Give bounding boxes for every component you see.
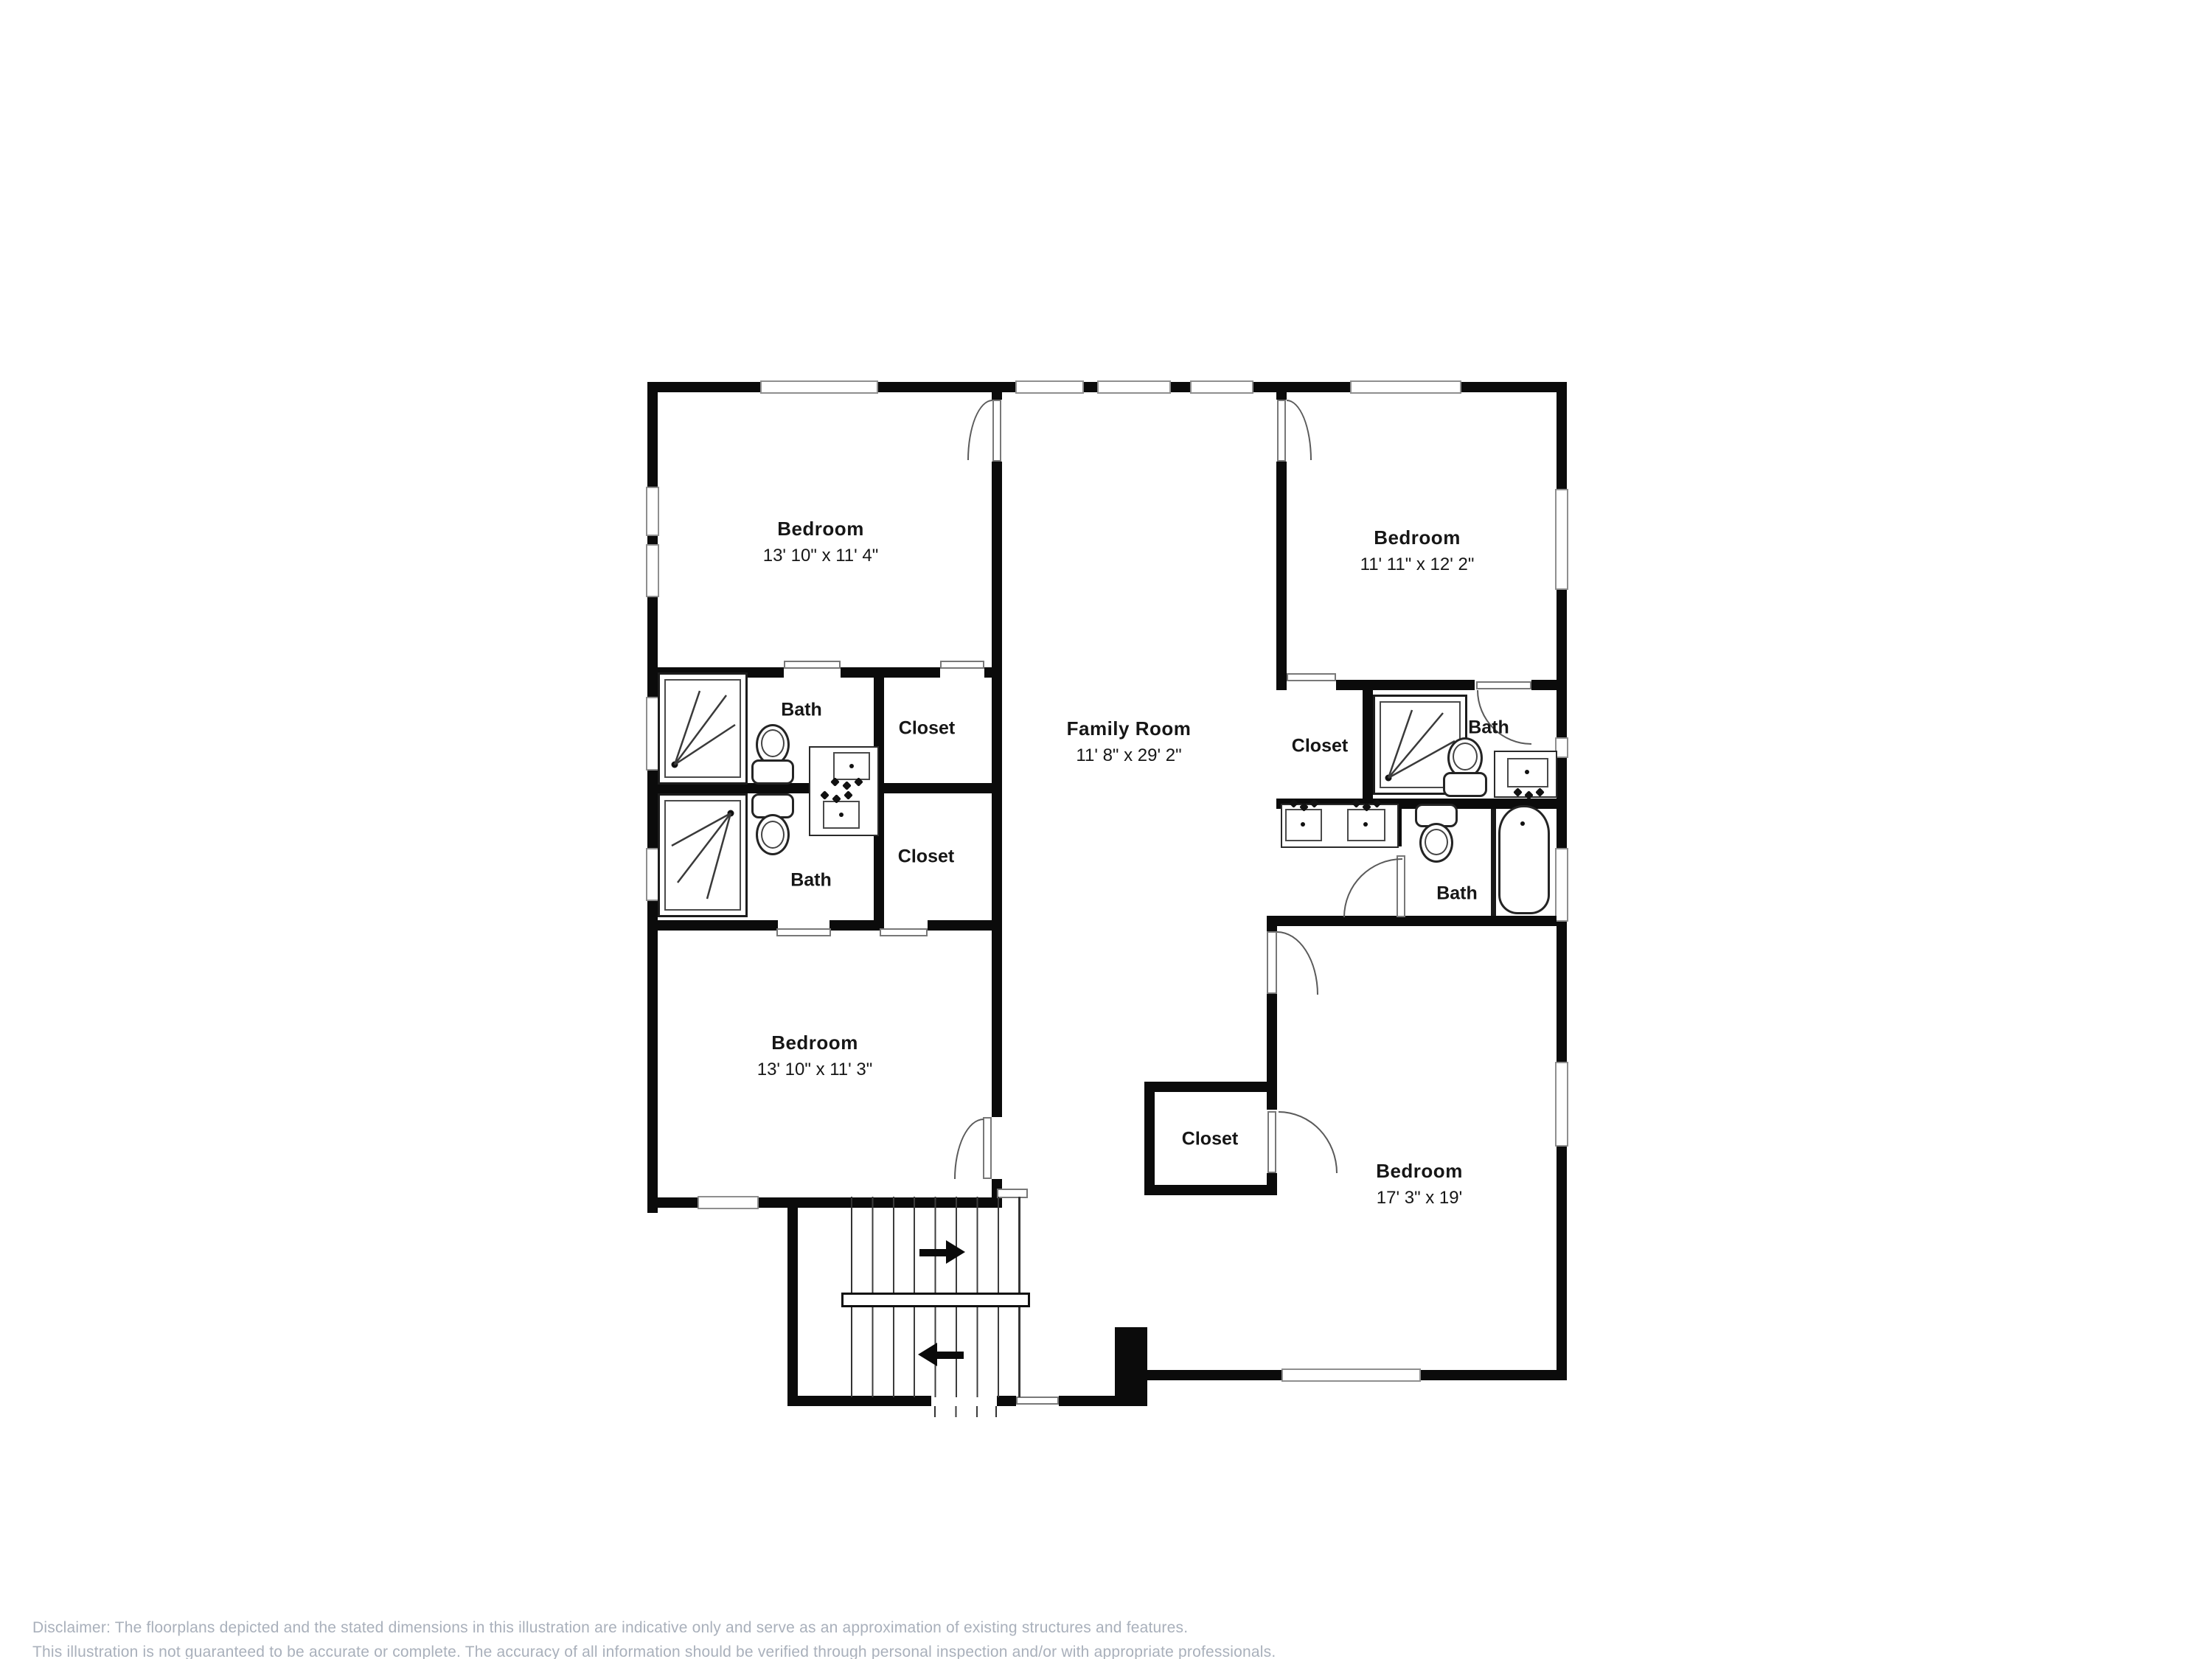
wall xyxy=(1253,382,1350,392)
wall xyxy=(1276,462,1287,690)
wall xyxy=(1147,1370,1281,1380)
door-arc xyxy=(954,1119,984,1179)
stairs-extension xyxy=(934,1406,997,1417)
door-arc xyxy=(967,400,992,460)
wall xyxy=(1461,382,1567,392)
wall xyxy=(997,1396,1016,1406)
room-dimensions: 13' 10" x 11' 4" xyxy=(763,546,879,566)
room-label-bath-right-upper: Bath xyxy=(1468,717,1509,739)
wall xyxy=(647,536,658,544)
room-label-bath-left-upper: Bath xyxy=(781,700,822,721)
wall xyxy=(647,901,658,1213)
disclaimer-line-2: This illustration is not guaranteed to b… xyxy=(32,1644,1276,1659)
window xyxy=(1350,380,1461,394)
room-label-bedroom-top-left: Bedroom 13' 10" x 11' 4" xyxy=(763,518,879,566)
window xyxy=(1281,1368,1421,1382)
room-label-bedroom-bottom-right: Bedroom 17' 3" x 19' xyxy=(1376,1160,1463,1208)
room-label-family-room: Family Room 11' 8" x 29' 2" xyxy=(1067,717,1192,766)
room-name: Bedroom xyxy=(763,518,879,540)
sink-drain xyxy=(1363,822,1368,827)
wall xyxy=(1267,994,1277,1084)
wall xyxy=(647,597,658,697)
wall xyxy=(787,1203,798,1406)
stairs-upper-flight xyxy=(851,1197,1020,1294)
wall xyxy=(1531,680,1557,690)
wall xyxy=(647,771,658,848)
room-name: Bedroom xyxy=(757,1032,873,1054)
wall xyxy=(1336,680,1475,690)
room-label-closet-left-upper: Closet xyxy=(899,718,955,740)
window xyxy=(760,380,878,394)
wall xyxy=(1557,922,1567,1062)
room-dimensions: 11' 11" x 12' 2" xyxy=(1360,554,1475,575)
toilet-bowl-inner xyxy=(1425,829,1448,855)
sink-drain xyxy=(849,764,854,768)
door-slab xyxy=(1476,681,1531,689)
wall xyxy=(1276,680,1287,690)
window xyxy=(1555,1062,1568,1147)
wall xyxy=(841,667,940,678)
room-name: Bedroom xyxy=(1360,526,1475,549)
wall xyxy=(1557,382,1567,489)
wall xyxy=(1171,382,1190,392)
wall xyxy=(1557,590,1567,737)
wall xyxy=(1276,382,1287,400)
toilet-tank xyxy=(1443,772,1487,797)
door-slab xyxy=(983,1117,992,1179)
door-slab xyxy=(1016,1397,1059,1405)
toilet-tank xyxy=(751,759,794,785)
window xyxy=(646,544,659,597)
door-slab xyxy=(880,928,928,936)
shower-spray-icon xyxy=(664,679,741,778)
toilet-bowl-inner xyxy=(1453,742,1478,771)
sink-drain xyxy=(1525,770,1529,774)
door-arc xyxy=(1277,931,1318,995)
wall xyxy=(1557,1147,1567,1380)
door-slab xyxy=(992,400,1001,462)
wall xyxy=(992,462,1002,1117)
room-dimensions: 17' 3" x 19' xyxy=(1376,1188,1463,1208)
wall xyxy=(1144,1082,1277,1092)
door-slab xyxy=(784,661,841,669)
toilet-bowl-inner xyxy=(761,821,785,849)
tub-drain xyxy=(1520,821,1525,826)
window xyxy=(698,1196,759,1209)
wall xyxy=(1267,916,1557,926)
stairs-up-arrow-icon xyxy=(919,1249,946,1256)
wall xyxy=(1421,1370,1567,1380)
stairs-down-arrow-head-icon xyxy=(918,1343,937,1366)
sink-drain xyxy=(839,813,844,817)
room-label-bath-right-lower: Bath xyxy=(1436,883,1478,905)
door-slab xyxy=(1287,673,1336,681)
window xyxy=(646,487,659,536)
room-label-closet-bottom: Closet xyxy=(1182,1129,1238,1150)
wall xyxy=(1084,382,1097,392)
wall xyxy=(1144,1082,1155,1195)
floor-plan: Bedroom 13' 10" x 11' 4" Bedroom 11' 11"… xyxy=(0,0,2212,1659)
window xyxy=(1555,848,1568,922)
shower-spray-icon xyxy=(664,800,741,911)
sink-drain xyxy=(1301,822,1305,827)
wall xyxy=(1267,1082,1277,1110)
wall xyxy=(1267,1173,1277,1195)
window xyxy=(1015,380,1084,394)
door-arc xyxy=(1279,1111,1338,1173)
door-arc xyxy=(1287,400,1312,460)
wall xyxy=(787,1396,931,1406)
wall xyxy=(647,382,658,487)
wall-pier xyxy=(1115,1327,1147,1406)
door-slab xyxy=(776,928,831,936)
door-slab xyxy=(1267,1111,1276,1173)
door-arc xyxy=(1343,858,1402,917)
wall xyxy=(653,382,760,392)
wall xyxy=(1267,926,1277,931)
window xyxy=(1555,489,1568,590)
room-name: Family Room xyxy=(1067,717,1192,740)
window xyxy=(1097,380,1171,394)
wall xyxy=(928,920,992,931)
wall xyxy=(647,1197,698,1208)
wall xyxy=(1144,1185,1277,1195)
door-slab xyxy=(1267,931,1277,994)
room-dimensions: 13' 10" x 11' 3" xyxy=(757,1060,873,1080)
room-label-bedroom-top-right: Bedroom 11' 11" x 12' 2" xyxy=(1360,526,1475,575)
wall xyxy=(1363,690,1373,799)
wall xyxy=(1491,809,1496,916)
wall xyxy=(658,920,778,931)
door-slab xyxy=(1277,400,1286,462)
stairs-up-arrow-head-icon xyxy=(946,1240,965,1264)
room-label-closet-right-upper: Closet xyxy=(1292,736,1348,757)
stairs-landing xyxy=(841,1293,1030,1307)
wall xyxy=(992,382,1002,400)
door-slab xyxy=(940,661,984,669)
room-label-closet-left-lower: Closet xyxy=(898,846,954,868)
toilet-bowl-inner xyxy=(761,729,785,757)
room-label-bedroom-bottom-left: Bedroom 13' 10" x 11' 3" xyxy=(757,1032,873,1080)
stairs-down-arrow-icon xyxy=(937,1352,964,1359)
room-name: Bedroom xyxy=(1376,1160,1463,1183)
wall xyxy=(1557,758,1567,848)
disclaimer-line-1: Disclaimer: The floorplans depicted and … xyxy=(32,1619,1188,1637)
window xyxy=(1190,380,1253,394)
room-dimensions: 11' 8" x 29' 2" xyxy=(1067,745,1192,766)
wall xyxy=(984,667,992,678)
room-label-bath-left-lower: Bath xyxy=(790,870,832,891)
